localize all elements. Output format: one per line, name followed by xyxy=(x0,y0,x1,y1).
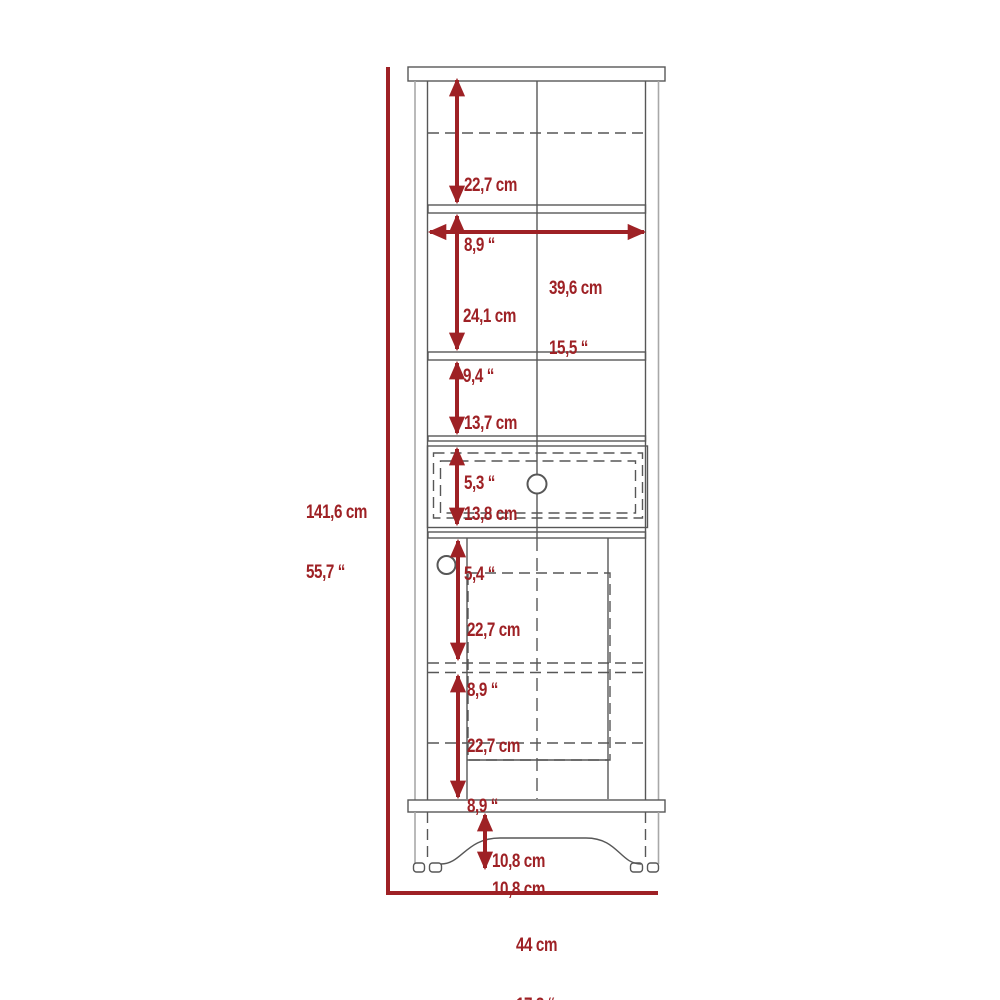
drawer-knob-icon xyxy=(528,475,547,494)
foot-left-inner xyxy=(430,863,442,872)
dim-lower-shelf-cm: 13,7 cm xyxy=(464,414,517,434)
door-knob-icon xyxy=(438,556,456,574)
dim-drawer-cm: 13,8 cm xyxy=(464,505,517,525)
dim-middle-shelf-cm: 24,1 cm xyxy=(463,307,516,327)
dim-door-upper-cm: 22,7 cm xyxy=(467,621,520,641)
dim-label-overall-width: 44 cm 17,3 “ xyxy=(516,896,557,1000)
dim-overall-width-cm: 44 cm xyxy=(516,936,557,956)
dim-overall-width-in: 17,3 “ xyxy=(516,996,557,1000)
foot-right-outer xyxy=(648,863,659,872)
dim-door-lower-cm: 22,7 cm xyxy=(467,737,520,757)
bottom-board xyxy=(408,800,665,812)
dimension-diagram-canvas: 22,7 cm 8,9 “ 39,6 cm 15,5 “ 24,1 cm 9,4… xyxy=(0,0,1000,1000)
dim-overall-height-in: 55,7 “ xyxy=(306,563,367,583)
right-side-panel xyxy=(646,81,659,800)
overall-extent-line xyxy=(388,67,658,893)
cabinet-outline xyxy=(408,67,665,872)
foot-left-outer xyxy=(414,863,425,872)
dim-top-shelf-cm: 22,7 cm xyxy=(464,176,517,196)
dim-overall-height-cm: 141,6 cm xyxy=(306,503,367,523)
left-side-panel xyxy=(415,81,428,800)
top-board xyxy=(408,67,665,81)
dim-interior-width-in: 15,5 “ xyxy=(549,339,602,359)
dimension-lines xyxy=(388,67,658,893)
dim-interior-width-cm: 39,6 cm xyxy=(549,279,602,299)
dim-label-interior-width: 39,6 cm 15,5 “ xyxy=(549,239,602,399)
dim-top-shelf-in: 8,9 “ xyxy=(464,236,517,256)
dim-label-overall-height: 141,6 cm 55,7 “ xyxy=(306,463,367,623)
